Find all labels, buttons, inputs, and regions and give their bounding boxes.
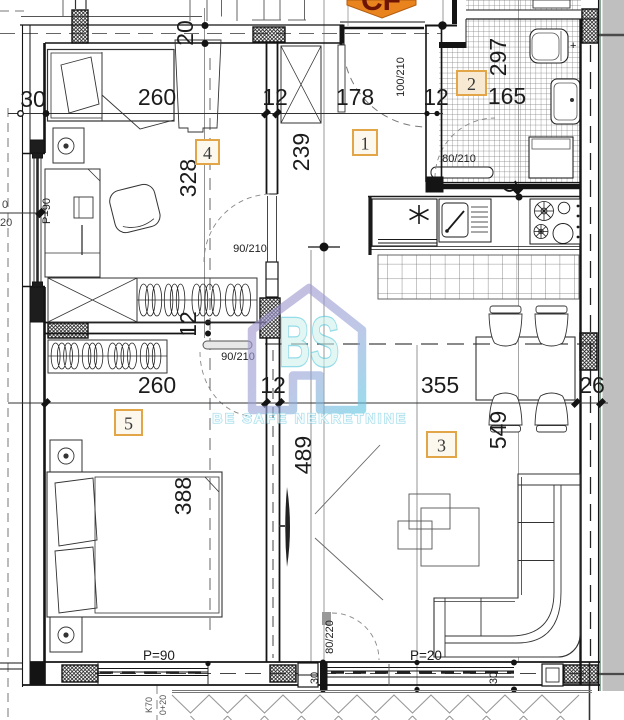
svg-text:26: 26 [579,372,605,398]
svg-text:20: 20 [0,217,12,229]
svg-text:30: 30 [488,672,500,684]
svg-text:165: 165 [488,83,526,109]
svg-text:80/220: 80/220 [324,620,336,654]
svg-text:0: 0 [2,199,8,211]
svg-text:BS: BS [279,303,339,381]
svg-text:P=90: P=90 [143,648,175,663]
svg-text:12: 12 [175,311,201,337]
svg-text:5: 5 [124,414,133,434]
svg-text:297: 297 [485,38,511,76]
svg-text:239: 239 [288,133,314,171]
svg-text:489: 489 [290,436,316,474]
svg-text:12: 12 [423,84,449,110]
svg-text:1: 1 [361,134,370,154]
svg-text:2: 2 [467,74,476,94]
svg-text:K70: K70 [144,697,154,713]
svg-text:260: 260 [138,84,176,110]
svg-text:BE SAFE NEKRETNINE: BE SAFE NEKRETNINE [212,410,407,426]
svg-text:90/210: 90/210 [233,243,267,255]
svg-text:355: 355 [421,372,459,398]
svg-text:178: 178 [336,84,374,110]
svg-text:388: 388 [170,477,196,515]
svg-text:12: 12 [262,84,288,110]
svg-text:80/210: 80/210 [442,153,476,165]
svg-text:30: 30 [20,86,46,112]
svg-text:30: 30 [309,672,321,684]
svg-text:CF: CF [361,0,401,17]
svg-text:100/210: 100/210 [395,57,407,97]
svg-text:0+20: 0+20 [158,695,168,715]
svg-text:20: 20 [172,20,198,46]
svg-text:4: 4 [203,143,212,163]
svg-text:260: 260 [138,372,176,398]
svg-text:P=90: P=90 [41,198,53,224]
svg-text:P=20: P=20 [410,648,442,663]
svg-text:549: 549 [485,411,511,449]
svg-text:3: 3 [437,436,446,456]
svg-text:+: + [570,40,576,52]
